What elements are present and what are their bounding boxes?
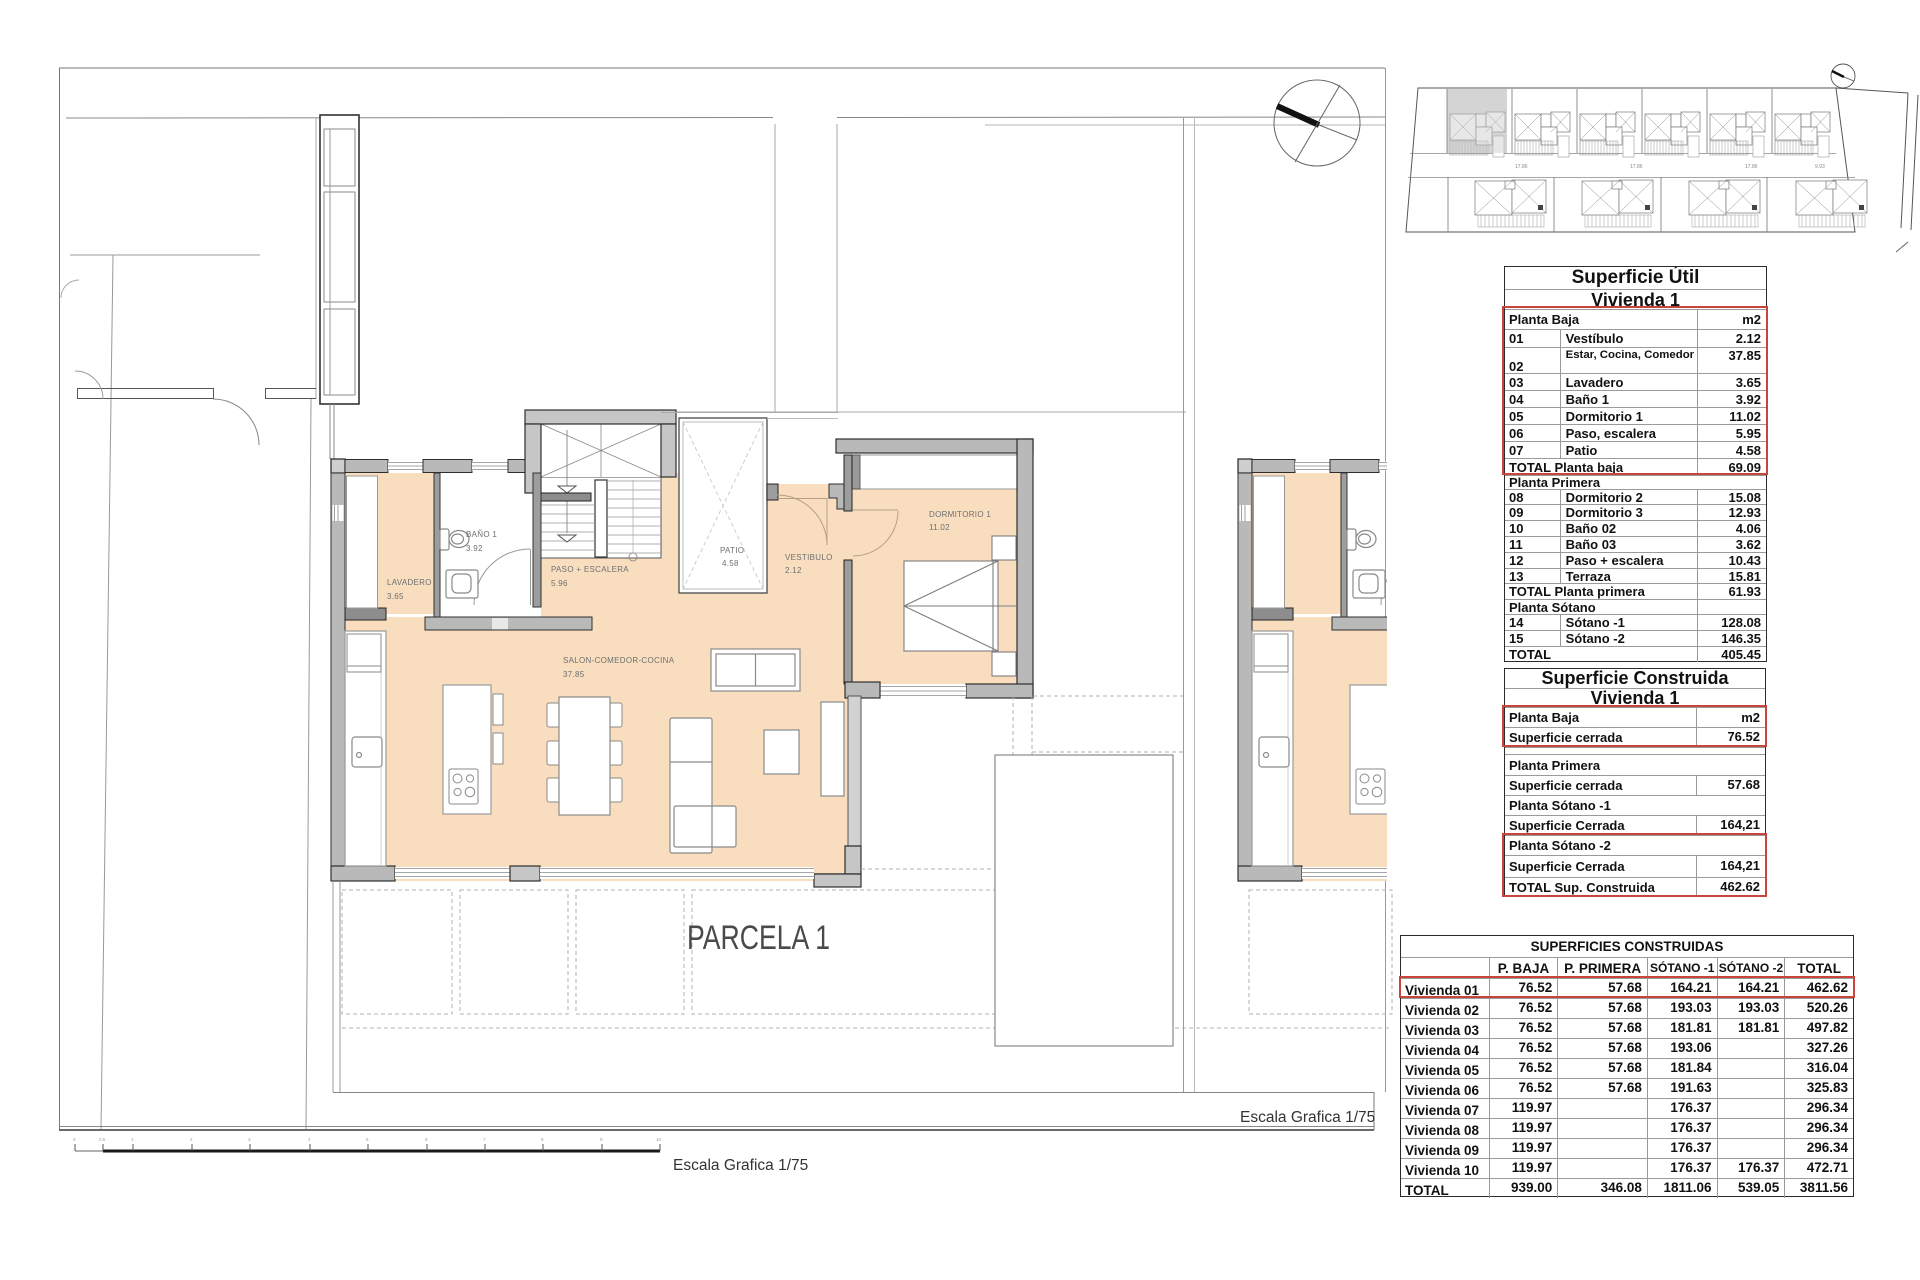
svg-text:6: 6 xyxy=(425,1137,428,1142)
svg-text:PARCELA 1: PARCELA 1 xyxy=(687,919,830,957)
svg-text:0: 0 xyxy=(73,1137,76,1142)
svg-text:3.92: 3.92 xyxy=(466,544,483,553)
svg-text:BAÑO 1: BAÑO 1 xyxy=(466,530,497,539)
svg-text:17.86: 17.86 xyxy=(1745,164,1758,170)
svg-text:5.96: 5.96 xyxy=(551,579,568,588)
svg-text:Escala Grafica 1/75: Escala Grafica 1/75 xyxy=(1240,1109,1375,1126)
svg-text:9: 9 xyxy=(600,1137,603,1142)
svg-text:SALON-COMEDOR-COCINA: SALON-COMEDOR-COCINA xyxy=(563,656,675,665)
svg-text:37.85: 37.85 xyxy=(563,670,585,679)
svg-text:3: 3 xyxy=(248,1137,251,1142)
svg-text:VESTIBULO: VESTIBULO xyxy=(785,553,833,562)
svg-text:10: 10 xyxy=(656,1137,662,1142)
svg-text:LAVADERO: LAVADERO xyxy=(387,578,432,587)
svg-text:DORMITORIO 1: DORMITORIO 1 xyxy=(929,510,991,519)
svg-text:3.65: 3.65 xyxy=(387,592,404,601)
svg-text:4.58: 4.58 xyxy=(722,559,739,568)
svg-text:2: 2 xyxy=(190,1137,193,1142)
svg-text:17.86: 17.86 xyxy=(1515,164,1528,170)
svg-text:5: 5 xyxy=(366,1137,369,1142)
svg-text:9.93: 9.93 xyxy=(1815,164,1825,170)
svg-text:PASO + ESCALERA: PASO + ESCALERA xyxy=(551,565,629,574)
svg-text:17.86: 17.86 xyxy=(1630,164,1643,170)
svg-text:11.02: 11.02 xyxy=(929,523,950,532)
svg-text:4: 4 xyxy=(308,1137,311,1142)
svg-text:1: 1 xyxy=(131,1137,134,1142)
svg-text:2.12: 2.12 xyxy=(785,566,802,575)
svg-text:Escala Grafica 1/75: Escala Grafica 1/75 xyxy=(673,1157,808,1174)
svg-text:PATIO: PATIO xyxy=(720,546,744,555)
svg-text:7: 7 xyxy=(483,1137,486,1142)
svg-text:0.5: 0.5 xyxy=(99,1137,106,1142)
svg-text:8: 8 xyxy=(541,1137,544,1142)
